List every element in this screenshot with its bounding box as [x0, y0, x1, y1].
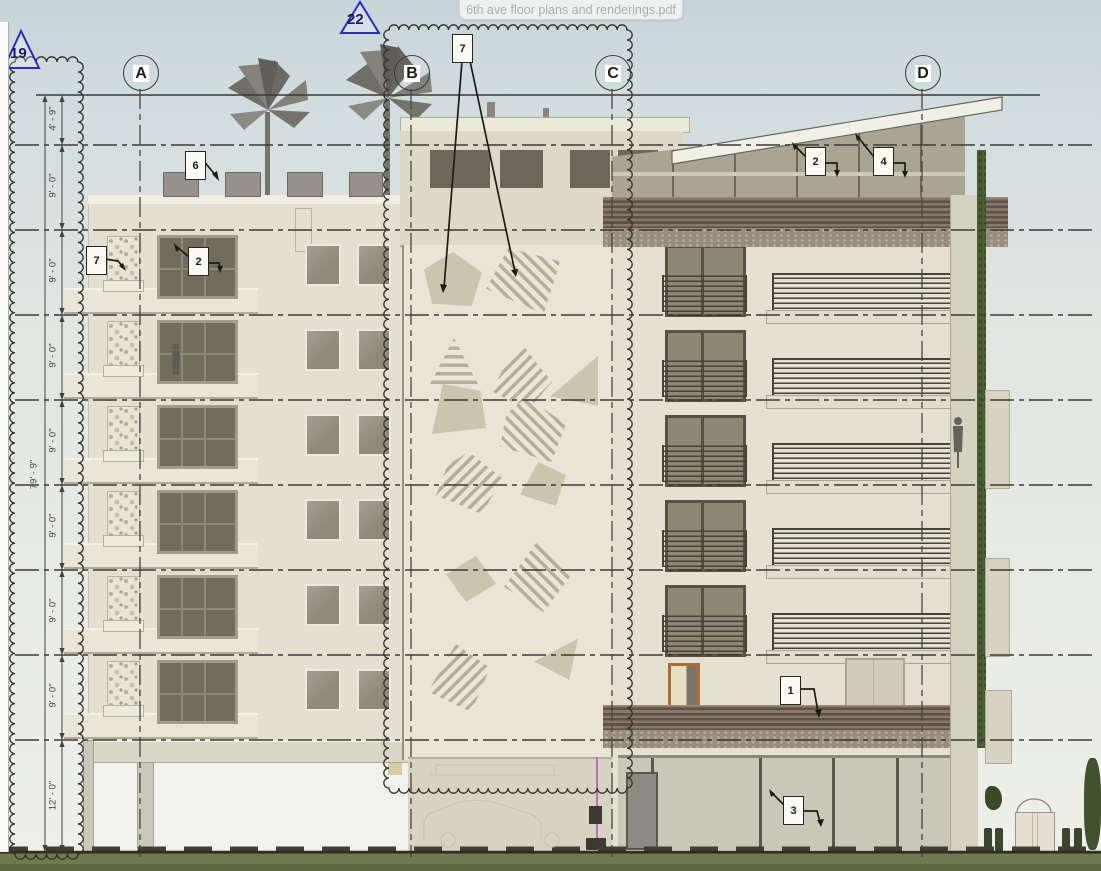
dimension-label-overall: 79' - 9" [29, 445, 40, 505]
callout-leaders [105, 61, 905, 822]
callout-penthouse-right: 4 [873, 147, 894, 176]
section-marker-19: 19 [10, 45, 27, 62]
page-edge [0, 22, 9, 852]
callout-stone-panel: 7 [86, 246, 107, 275]
callout-storefront: 3 [783, 796, 804, 825]
person-figure [953, 417, 963, 468]
revision-cloud [384, 25, 632, 793]
pdf-canvas[interactable]: 6th ave floor plans and renderings.pdf A… [0, 0, 1101, 871]
callout-wood-screen: 1 [780, 676, 801, 705]
grid-bubble-b: B [394, 55, 430, 91]
person-figure [172, 344, 180, 375]
callout-mural: 7 [452, 34, 473, 63]
grid-label: D [915, 65, 931, 82]
filename-text: 6th ave floor plans and renderings.pdf [466, 3, 676, 17]
level-lines-dashdot [15, 145, 1096, 740]
annotation-overlay [0, 0, 1101, 871]
callout-roof-parapet: 6 [185, 151, 206, 180]
grid-label: C [605, 65, 621, 82]
dimension-label: 9' - 0" [48, 496, 59, 556]
dome-outline [1017, 799, 1051, 813]
car-outlines [424, 765, 560, 847]
revision-cloud [10, 57, 83, 859]
dimension-label: 9' - 0" [48, 326, 59, 386]
sloped-roof [672, 97, 1002, 164]
dimension-label: 9' - 0" [48, 581, 59, 641]
dimension-label: 9' - 0" [48, 411, 59, 471]
grid-bubble-a: A [123, 55, 159, 91]
dimension-label: 9' - 0" [48, 666, 59, 726]
callout-penthouse-left: 2 [805, 147, 826, 176]
dimension-label: 9' - 0" [48, 241, 59, 301]
callout-left-window: 2 [188, 247, 209, 276]
dimension-label: 9' - 0" [48, 156, 59, 216]
leader-arrowheads [119, 133, 908, 827]
grid-bubble-c: C [595, 55, 631, 91]
filename-tooltip: 6th ave floor plans and renderings.pdf [459, 0, 683, 20]
grid-bubble-d: D [905, 55, 941, 91]
grid-label: A [133, 65, 149, 82]
dimension-label: 12' - 0" [48, 766, 59, 826]
section-marker-22: 22 [347, 11, 364, 28]
dimension-label: 4' - 9" [48, 89, 59, 149]
grid-lines [140, 89, 922, 857]
grid-label: B [404, 65, 420, 82]
